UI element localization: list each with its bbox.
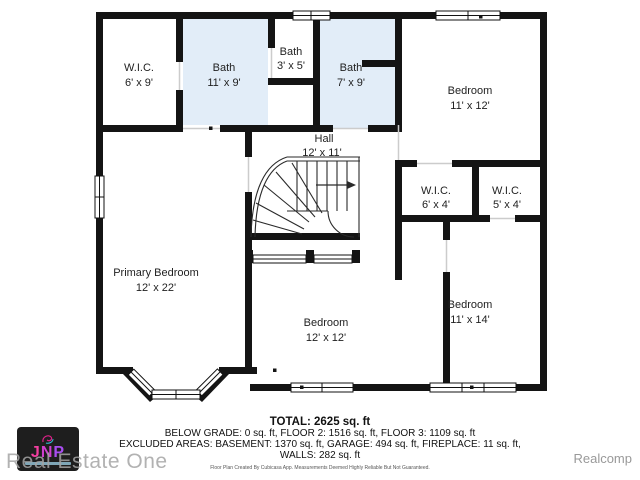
room-dims-bedroom-11x14: 11' x 14' — [450, 314, 489, 326]
below-grade-text: BELOW GRADE: 0 sq. ft, FLOOR 2: 1516 sq.… — [0, 428, 640, 439]
room-dims-wic-6x4: 6' x 4' — [422, 199, 450, 211]
room-label-bath-small: Bath — [280, 46, 303, 58]
room-dims-bath-hall: 7' x 9' — [337, 77, 365, 89]
room-label-wic-6x4: W.I.C. — [421, 185, 451, 197]
window-top-2 — [436, 11, 500, 20]
floor-plan-drawing: W.I.C. 6' x 9' Bath 11' x 9' Bath 3' x 5… — [0, 0, 640, 480]
room-dims-wic-5x4: 5' x 4' — [493, 199, 521, 211]
room-label-hall: Hall — [315, 133, 334, 145]
floor-plan-page: W.I.C. 6' x 9' Bath 11' x 9' Bath 3' x 5… — [0, 0, 640, 480]
room-label-bath-hall: Bath — [340, 62, 363, 74]
room-dims-bath-small: 3' x 5' — [277, 60, 305, 72]
excluded-areas-text: EXCLUDED AREAS: BASEMENT: 1370 sq. ft, G… — [0, 439, 640, 450]
realcomp-attribution: Realcomp — [573, 451, 632, 466]
window-top-1 — [293, 11, 330, 20]
watermark-real-estate-one: Real Estate One — [6, 450, 168, 474]
room-label-bedroom-12x12: Bedroom — [304, 317, 349, 329]
room-label-wic-top-left: W.I.C. — [124, 62, 154, 74]
stair-direction-arrow — [316, 181, 356, 189]
room-dims-bedroom-12x12: 12' x 12' — [306, 332, 346, 344]
room-label-primary-bedroom: Primary Bedroom — [113, 267, 199, 279]
room-dims-bedroom-top-right: 11' x 12' — [450, 100, 489, 112]
staircase — [251, 157, 360, 237]
total-area-text: TOTAL: 2625 sq. ft — [0, 417, 640, 428]
room-dims-primary-bedroom: 12' x 22' — [136, 282, 176, 294]
room-dims-bath-main: 11' x 9' — [207, 77, 240, 89]
bay-window-center — [152, 390, 200, 399]
room-dims-hall: 12' x 11' — [302, 147, 341, 159]
room-dims-wic-top-left: 6' x 9' — [125, 77, 153, 89]
room-label-wic-5x4: W.I.C. — [492, 185, 522, 197]
room-label-bedroom-11x14: Bedroom — [448, 299, 493, 311]
closet-sliding-doors — [253, 255, 352, 263]
room-label-bath-main: Bath — [213, 62, 236, 74]
room-label-bedroom-top-right: Bedroom — [448, 85, 493, 97]
window-left — [95, 176, 104, 218]
